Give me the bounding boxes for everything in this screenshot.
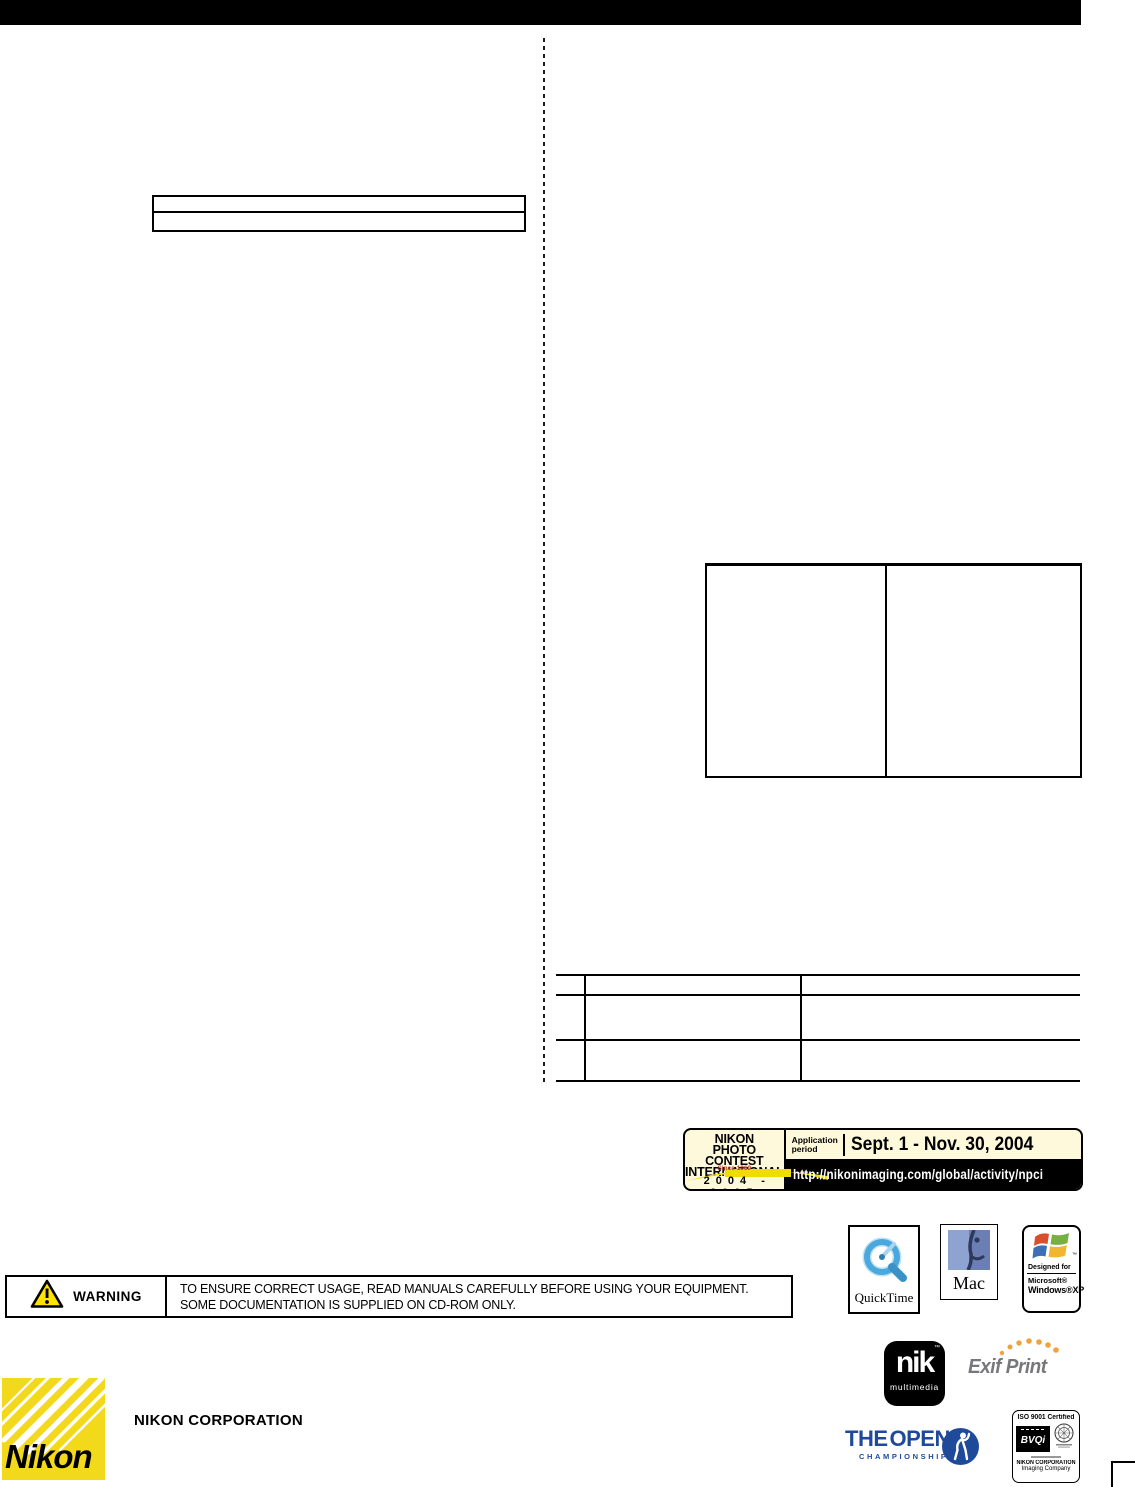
windows-tm: ™ xyxy=(1072,1252,1077,1258)
nik-multimedia-logo: ™ nik multimedia xyxy=(884,1341,945,1406)
nikon-logo: Nikon xyxy=(2,1378,105,1480)
exif-print-logo: Exif Print xyxy=(966,1338,1076,1388)
table-rule-row1 xyxy=(556,994,1080,996)
application-dates: Sept. 1 - Nov. 30, 2004 xyxy=(851,1134,1033,1156)
two-row-box xyxy=(152,195,526,232)
iso-org: NIKON CORPORATION xyxy=(1016,1460,1075,1466)
application-label-line2: period xyxy=(792,1145,838,1154)
windows-xp-label: Windows®XP xyxy=(1028,1285,1075,1295)
mac-label: Mac xyxy=(941,1273,997,1294)
open-the: THE xyxy=(845,1426,888,1451)
mac-logo: Mac xyxy=(940,1224,998,1300)
page: NIKON PHOTO CONTEST INTERNATIONAL Since … xyxy=(0,0,1135,1487)
divider xyxy=(153,211,525,213)
open-championship-logo: THEOPEN CHAMPIONSHIP xyxy=(845,1428,985,1470)
warning-text: TO ENSURE CORRECT USAGE, READ MANUALS CA… xyxy=(167,1281,791,1313)
contest-banner-right: Application period Sept. 1 - Nov. 30, 20… xyxy=(786,1130,1083,1189)
iso-seal-icon xyxy=(1052,1423,1076,1454)
table-rule-col1 xyxy=(584,974,586,1082)
nik-multimedia-label: multimedia xyxy=(884,1382,945,1392)
top-black-bar xyxy=(0,0,1081,25)
nikon-corporation-text: NIKON CORPORATION xyxy=(134,1412,303,1429)
open-open: OPEN xyxy=(890,1426,950,1451)
open-golfer-icon xyxy=(942,1428,979,1465)
fold-dotted-line xyxy=(543,38,545,1082)
application-period-row: Application period Sept. 1 - Nov. 30, 20… xyxy=(786,1130,1083,1159)
warning-label: WARNING xyxy=(73,1289,142,1304)
windows-designed-for: Designed for xyxy=(1028,1264,1075,1271)
contest-url: http://nikonimaging.com/global/activity/… xyxy=(793,1167,1043,1182)
mac-face-icon xyxy=(948,1257,990,1274)
quicktime-logo: QuickTime xyxy=(848,1225,920,1314)
exif-print-label: Exif Print xyxy=(968,1356,1047,1379)
two-column-box xyxy=(705,563,1082,778)
contest-title-line2: PHOTO CONTEST xyxy=(685,1145,784,1167)
iso-microtext xyxy=(1031,1456,1061,1458)
warning-text-line2: SOME DOCUMENTATION IS SUPPLIED ON CD-ROM… xyxy=(180,1297,791,1313)
nikon-wordmark: Nikon xyxy=(5,1438,92,1476)
table-rule-bottom xyxy=(556,1080,1080,1082)
contest-banner-left: NIKON PHOTO CONTEST INTERNATIONAL Since … xyxy=(685,1130,786,1189)
bvqi-label: BVQi xyxy=(1016,1435,1050,1446)
windows-flag-icon: ™ xyxy=(1028,1230,1075,1263)
quicktime-label: QuickTime xyxy=(850,1290,918,1306)
windows-microsoft: Microsoft® xyxy=(1028,1276,1075,1285)
photo-contest-banner: NIKON PHOTO CONTEST INTERNATIONAL Since … xyxy=(683,1128,1083,1191)
divider xyxy=(885,566,887,776)
table-rule-col2 xyxy=(800,974,802,1082)
divider xyxy=(1027,1273,1076,1274)
iso-division: Imaging Company xyxy=(1013,1466,1079,1472)
nik-name: nik xyxy=(884,1348,945,1378)
warning-text-line1: TO ENSURE CORRECT USAGE, READ MANUALS CA… xyxy=(180,1281,791,1297)
iso-row: BVQi xyxy=(1013,1423,1079,1454)
contest-since: Since 1969 xyxy=(685,1165,784,1172)
quicktime-q-icon xyxy=(856,1274,912,1291)
page-corner-box xyxy=(1111,1461,1135,1487)
warning-box: WARNING TO ENSURE CORRECT USAGE, READ MA… xyxy=(5,1275,793,1318)
iso-9001-logo: ISO 9001 Certified BVQi NIKON CORPORATIO… xyxy=(1012,1410,1080,1483)
bvqi-badge: BVQi xyxy=(1016,1426,1050,1452)
application-period-label: Application period xyxy=(792,1136,838,1153)
warning-left-cell: WARNING xyxy=(7,1277,167,1316)
divider xyxy=(843,1134,845,1156)
table-rule-top xyxy=(556,974,1080,976)
table-rule-row2 xyxy=(556,1039,1080,1041)
bvqi-dash xyxy=(1021,1429,1045,1430)
windows-xp-logo: ™ Designed for Microsoft® Windows®XP xyxy=(1022,1225,1081,1313)
nik-tm: ™ xyxy=(934,1345,940,1351)
iso-title: ISO 9001 Certified xyxy=(1015,1414,1078,1421)
warning-triangle-icon xyxy=(30,1279,64,1314)
contest-years: 2004 - 2005 xyxy=(685,1175,784,1191)
contest-url-band: http://nikonimaging.com/global/activity/… xyxy=(786,1159,1083,1189)
